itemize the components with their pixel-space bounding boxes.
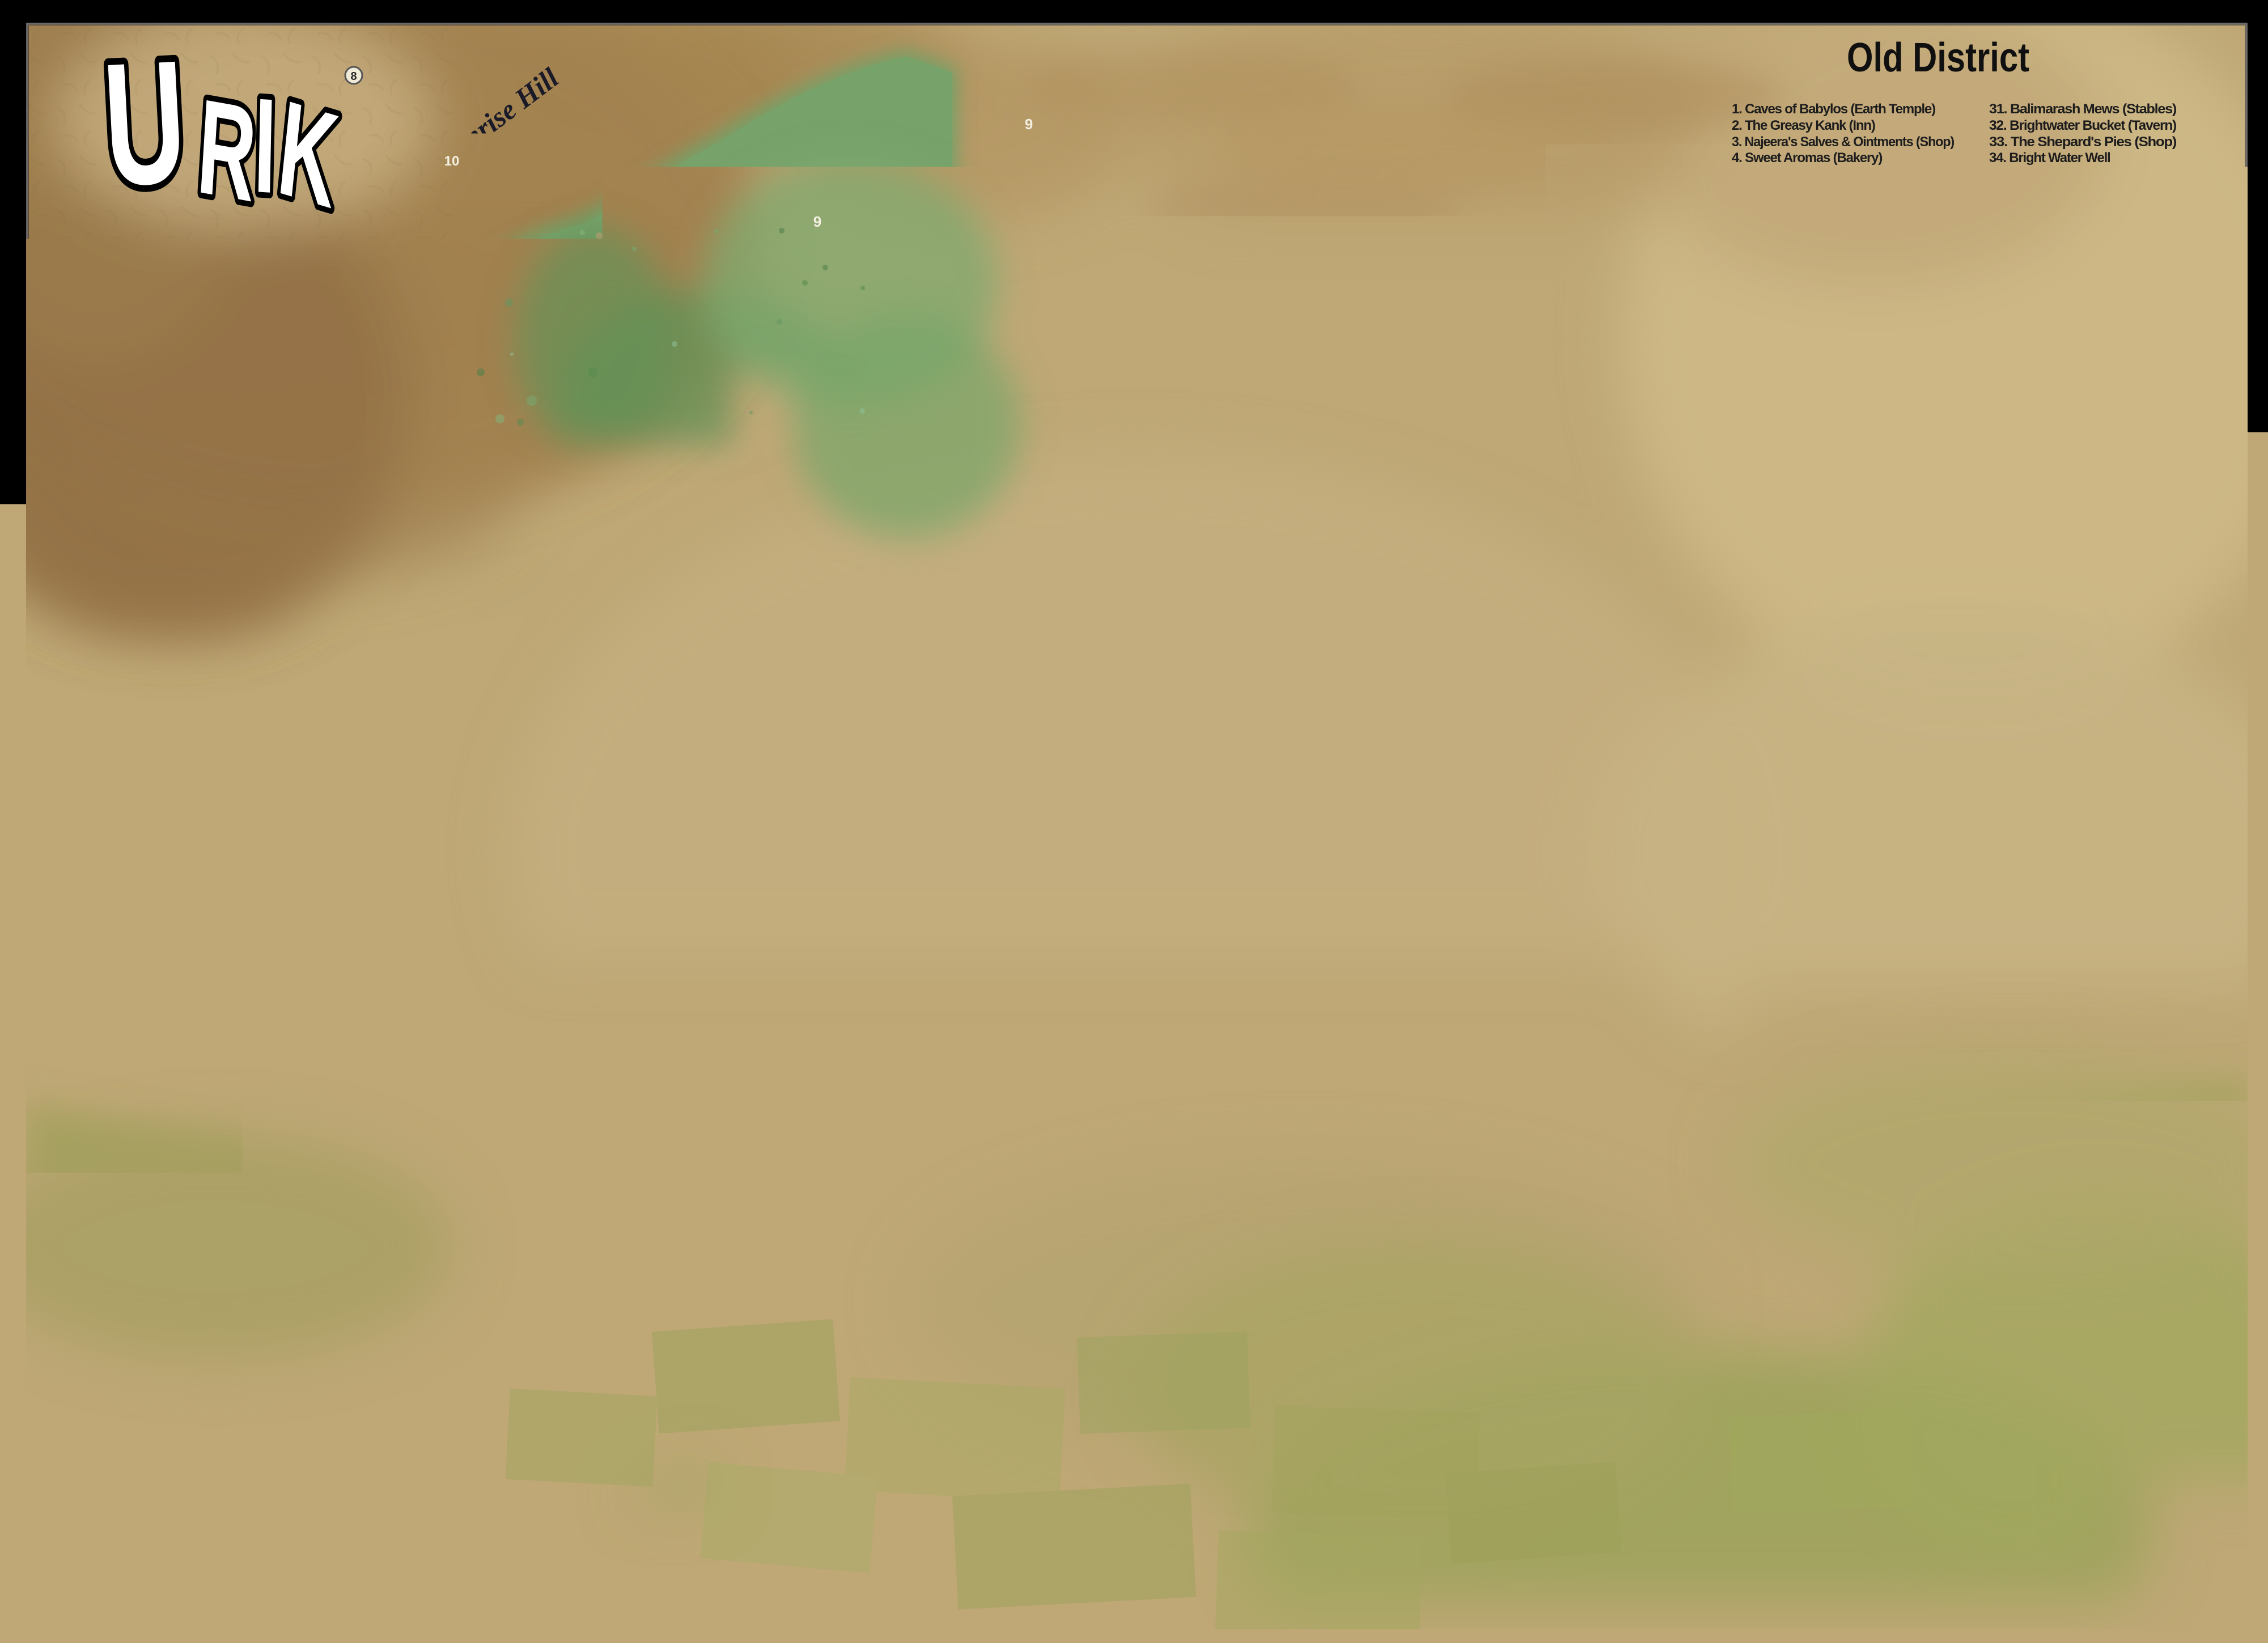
svg-text:13. Noktik's Obsidian Emporium: 13. Noktik's Obsidian Emporium (Shop) xyxy=(1873,859,2055,874)
svg-text:25. Shalia's Crystal Finery (: 25. Shalia's Crystal Finery (Shop) xyxy=(2061,859,2248,874)
svg-text:7: 7 xyxy=(409,429,416,444)
svg-text:2. Open Arms Inn (Inn): 2. Open Arms Inn (Inn) xyxy=(1343,1302,1481,1318)
svg-text:SIXTH STREET: SIXTH STREET xyxy=(640,969,648,1038)
svg-text:31. Arah's Exquisite Ceramics: 31. Arah's Exquisite Ceramics (Shop) xyxy=(2061,971,2248,986)
svg-text:2: 2 xyxy=(1212,837,1218,849)
svg-text:26: 26 xyxy=(1180,961,1192,973)
svg-text:Observatory: Observatory xyxy=(2051,1568,2195,1600)
svg-text:23: 23 xyxy=(1074,328,1086,339)
svg-text:54. Yelloweyes (Tavern): 54. Yelloweyes (Tavern) xyxy=(1989,477,2125,492)
svg-text:2: 2 xyxy=(554,557,560,570)
svg-text:3. Mother's (Tavern): 3. Mother's (Tavern) xyxy=(1343,1321,1464,1336)
svg-text:12: 12 xyxy=(1207,1120,1217,1130)
svg-text:6. Caravan Depot: 6. Caravan Depot xyxy=(234,818,344,835)
svg-text:60. Shining Star (Inn): 60. Shining Star (Inn) xyxy=(1989,575,2110,590)
svg-text:ROARING WAY: ROARING WAY xyxy=(505,856,573,866)
svg-text:50. Bread Market: 50. Bread Market xyxy=(1989,411,2088,427)
svg-text:22. Numar's Fine Spirits (Tave: 22. Numar's Fine Spirits (Tavern) xyxy=(865,1411,1082,1427)
svg-text:8. The Templar Orphanage: 8. The Templar Orphanage xyxy=(118,1093,287,1110)
svg-text:1: 1 xyxy=(533,911,540,923)
svg-text:8: 8 xyxy=(1411,1017,1417,1028)
svg-text:23. Yorgar's Poultry Shop (Sho: 23. Yorgar's Poultry Shop (Shop) xyxy=(1732,461,1922,476)
svg-text:2. The Temple of the Lion Go: 2. The Temple of the Lion God (Civic Bur… xyxy=(54,303,372,320)
svg-text:34: 34 xyxy=(1315,358,1326,370)
svg-text:26: 26 xyxy=(780,877,792,889)
svg-text:26: 26 xyxy=(1335,378,1347,390)
svg-text:6: 6 xyxy=(1370,1165,1376,1176)
svg-text:8. The Lion's Crown (Inn): 8. The Lion's Crown (Inn) xyxy=(671,1392,823,1408)
svg-text:18. The Flesh Markets: 18. The Flesh Markets xyxy=(2046,1171,2173,1187)
svg-text:9: 9 xyxy=(1021,506,1027,518)
svg-text:SECOND STREET: SECOND STREET xyxy=(454,864,462,944)
svg-text:50': 50' xyxy=(86,1505,112,1526)
svg-text:8: 8 xyxy=(350,70,357,83)
svg-text:3. Whispers (Tavern): 3. Whispers (Tavern) xyxy=(118,999,248,1016)
svg-text:Templar District: Templar District xyxy=(84,908,348,949)
svg-text:4. The Banshee's Wail (Tavern): 4. The Banshee's Wail (Tavern) xyxy=(671,1319,864,1335)
svg-text:5: 5 xyxy=(804,1022,810,1034)
svg-text:21.The Rascally Rasclinn (Inn): 21.The Rascally Rasclinn (Inn) xyxy=(1732,428,1907,443)
svg-text:25: 25 xyxy=(1536,708,1549,720)
svg-text:17. House Lubar Villa: 17. House Lubar Villa xyxy=(865,1319,995,1335)
svg-text:2: 2 xyxy=(1237,822,1244,834)
svg-text:7: 7 xyxy=(536,1145,541,1156)
svg-text:49: 49 xyxy=(1055,385,1067,397)
svg-text:24: 24 xyxy=(1275,559,1288,571)
svg-text:LION'S WAY: LION'S WAY xyxy=(1014,806,1023,866)
svg-text:32. Font of Hamanu the Water-: 32. Font of Hamanu the Water-Bringer xyxy=(2061,990,2248,1005)
svg-text:IMPERIAL STREET: IMPERIAL STREET xyxy=(816,1059,825,1151)
svg-text:20: 20 xyxy=(1475,269,1487,281)
svg-text:18. Kik'ki'rik's Chitinwear (S: 18. Kik'ki'rik's Chitinwear (Shop) xyxy=(1732,379,1918,394)
svg-text:5. Cool Breeze Inn (Inn): 5. Cool Breeze Inn (Inn) xyxy=(1672,933,1807,949)
svg-text:3. The Yellow Sloth (Inn): 3. The Yellow Sloth (Inn) xyxy=(1672,727,1811,742)
svg-text:Foreign Quarter: Foreign Quarter xyxy=(1315,1232,1580,1273)
svg-text:6. Scents of the Forest (Shop): 6. Scents of the Forest (Shop) xyxy=(1732,183,1904,198)
svg-text:8: 8 xyxy=(434,985,439,996)
svg-text:58. The Marriage Market: 58. The Marriage Market xyxy=(1989,542,2129,558)
svg-text:SLAVE BOULEVARD: SLAVE BOULEVARD xyxy=(418,600,506,610)
svg-text:37: 37 xyxy=(1246,368,1258,380)
svg-text:48. District Precinct: 48. District Precinct xyxy=(1989,379,2102,394)
svg-text:56. Oraniah's Glassworks (Sho: 56. Oraniah's Glassworks (Shop) xyxy=(1989,510,2176,525)
svg-text:9. King's Gardens: 9. King's Gardens xyxy=(54,439,167,456)
svg-text:44. Zakkur's Tailoring (Shop): 44. Zakkur's Tailoring (Shop) xyxy=(1989,313,2176,329)
svg-text:6. Harganto's Strange Delights: 6. Harganto's Strange Delights xyxy=(1672,952,1859,967)
svg-text:42. Farmer's Market: 42. Farmer's Market xyxy=(1989,281,2104,296)
svg-text:13: 13 xyxy=(1055,1174,1066,1184)
svg-text:10. Nerridh's Outrider Hiring: 10. Nerridh's Outrider Hiring Services xyxy=(1870,746,2061,761)
svg-text:5: 5 xyxy=(1299,516,1305,528)
svg-text:U: U xyxy=(99,24,190,223)
svg-text:10. Ughrosh's Gladiator School: 10. Ughrosh's Gladiator School (School) xyxy=(1343,1453,1585,1468)
svg-text:55: 55 xyxy=(1182,284,1195,296)
svg-text:10: 10 xyxy=(1368,766,1380,778)
svg-text:4. Shadow Market: 4. Shadow Market xyxy=(234,779,348,796)
svg-text:1: 1 xyxy=(460,966,465,977)
svg-text:FOURTH STREET: FOURTH STREET xyxy=(537,1043,545,1122)
svg-text:24. Xerxes' Botanicals (Shop): 24. Xerxes' Botanicals (Shop) xyxy=(1732,477,1902,492)
svg-text:(Water Temple):: (Water Temple): xyxy=(2061,1008,2152,1023)
svg-text:1: 1 xyxy=(1240,862,1246,874)
svg-text:44: 44 xyxy=(1426,464,1438,476)
svg-text:49: 49 xyxy=(1005,472,1017,483)
svg-text:9. House Tslaxa: 9. House Tslaxa xyxy=(1841,1138,1934,1153)
svg-text:13. Arena Compound: 13. Arena Compound xyxy=(1841,1205,1965,1220)
svg-text:32. Brightwater Bucket (Taver: 32. Brightwater Bucket (Tavern) xyxy=(1989,118,2176,133)
svg-text:47: 47 xyxy=(1313,543,1325,555)
svg-text:7: 7 xyxy=(1206,1164,1211,1174)
svg-text:1: 1 xyxy=(1378,1132,1384,1144)
svg-text:32: 32 xyxy=(1206,452,1218,464)
svg-text:14. Gates of Woe: 14. Gates of Woe xyxy=(1686,1340,1790,1356)
svg-text:9: 9 xyxy=(514,1137,519,1149)
svg-text:27. Creature Comforts (Stables: 27. Creature Comforts (Stables) xyxy=(1732,526,1915,541)
svg-text:7. Ghulda's Grotto (Earth Temp: 7. Ghulda's Grotto (Earth Temple) xyxy=(1343,1396,1546,1412)
svg-text:11. House Wavir: 11. House Wavir xyxy=(1841,1171,1935,1187)
svg-text:40. The Prancing Peacock (Inn: 40. The Prancing Peacock (Inn) xyxy=(1989,248,2176,264)
svg-text:16. Shisha Lounge (Tavern): 16. Shisha Lounge (Tavern) xyxy=(1732,346,1891,362)
svg-text:1. Gates of Destiny: 1. Gates of Destiny xyxy=(1672,859,1782,874)
svg-text:10. Potter's Court: 10. Potter's Court xyxy=(1672,1026,1773,1042)
svg-text:42: 42 xyxy=(1313,465,1325,478)
svg-text:18: 18 xyxy=(1500,539,1512,551)
svg-text:5. House Klethira: 5. House Klethira xyxy=(1680,1188,1781,1204)
svg-text:22: 22 xyxy=(1188,815,1199,827)
svg-text:Artisan Quarter: Artisan Quarter xyxy=(1798,800,2060,844)
svg-text:13. Doriman's Hardy Spindles (: 13. Doriman's Hardy Spindles (Shop) xyxy=(1686,1321,1921,1336)
svg-text:21. Enkidu's Venture Shop (Sho: 21. Enkidu's Venture Shop (Shop) xyxy=(1873,1008,2055,1023)
svg-text:2: 2 xyxy=(936,440,944,457)
svg-text:5: 5 xyxy=(1269,451,1275,462)
svg-text:35: 35 xyxy=(1045,436,1058,448)
svg-text:2: 2 xyxy=(842,1093,849,1105)
svg-text:17. The Shiv (Tavern): 17. The Shiv (Tavern) xyxy=(1686,1396,1814,1412)
svg-text:CUSTOMS ROW: CUSTOMS ROW xyxy=(1303,956,1376,966)
svg-text:12. Voric's Tonics & Things (S: 12. Voric's Tonics & Things (Shop) xyxy=(1686,1302,1895,1318)
svg-text:22: 22 xyxy=(1392,910,1404,922)
svg-text:1. Urikets: 1. Urikets xyxy=(671,1264,728,1280)
svg-text:38: 38 xyxy=(1128,408,1140,420)
svg-text:2. House Stel: 2. House Stel xyxy=(1680,1138,1757,1153)
svg-text:9: 9 xyxy=(1210,1130,1215,1140)
svg-text:59: 59 xyxy=(1449,378,1461,390)
svg-text:1. The Thirsty Tigone (Tavern): 1. The Thirsty Tigone (Tavern) xyxy=(1672,690,1858,706)
svg-text:47: 47 xyxy=(1423,263,1435,275)
svg-text:19. Dragon's Square: 19. Dragon's Square xyxy=(1686,1434,1811,1450)
svg-text:53. Beyond the Forest (Shop): 53. Beyond the Forest (Shop) xyxy=(1989,461,2176,476)
svg-text:Trader's Row: Trader's Row xyxy=(1821,646,2040,691)
svg-text:20. The Friendly Mekillot (Sta: 20. The Friendly Mekillot (Stables) xyxy=(1873,990,2055,1005)
svg-text:9: 9 xyxy=(813,213,821,230)
svg-text:15. Deep Cups (Tavern): 15. Deep Cups (Tavern) xyxy=(1686,1358,1828,1374)
svg-text:19: 19 xyxy=(1010,537,1021,549)
svg-text:6. Royal Guard Barracks (Hal: 6. Royal Guard Barracks (Half-Giant Barr… xyxy=(54,381,372,398)
svg-text:8: 8 xyxy=(1366,404,1372,416)
svg-text:25. The Weeping Widow (Tavern): 25. The Weeping Widow (Tavern) xyxy=(1732,493,1922,508)
svg-text:31. Balimarash Mews (Stables): 31. Balimarash Mews (Stables) xyxy=(1989,101,2176,117)
svg-text:LION'S WAY: LION'S WAY xyxy=(1057,644,1116,655)
svg-text:6. Bloody Knuckles (Tavern): 6. Bloody Knuckles (Tavern) xyxy=(1680,1205,1834,1220)
svg-text:4: 4 xyxy=(762,461,771,478)
svg-text:9. The Three-Armed B'rogh (Tav: 9. The Three-Armed B'rogh (Tavern) xyxy=(1343,1434,1562,1450)
svg-text:31: 31 xyxy=(1511,901,1524,912)
svg-text:18. House Ugared Villa: 18. House Ugared Villa xyxy=(865,1338,1004,1353)
svg-text:6. Xenon's Ink & Quill (Shop): 6. Xenon's Ink & Quill (Shop) xyxy=(671,1356,864,1372)
svg-text:250': 250' xyxy=(170,1505,207,1526)
svg-text:21: 21 xyxy=(1412,388,1425,400)
svg-text:4. House Krosi: 4. House Krosi xyxy=(1680,1171,1766,1187)
svg-text:38. Giant's Foot (Tavern): 38. Giant's Foot (Tavern) xyxy=(1989,216,2130,231)
svg-text:Old District: Old District xyxy=(1847,35,2029,80)
svg-text:10: 10 xyxy=(590,779,601,790)
svg-text:8. Royal Observatory: 8. Royal Observatory xyxy=(54,420,189,437)
svg-text:16. The Weaver's Market: 16. The Weaver's Market xyxy=(1873,915,2015,930)
svg-text:4. The Temple of War (War Bu: 4. The Temple of War (War Bureau) xyxy=(54,342,274,359)
svg-text:24. Muktal's Herbs and Poultic: 24. Muktal's Herbs and Poultices (Shop) xyxy=(1873,1064,2055,1079)
svg-text:6: 6 xyxy=(628,1016,634,1028)
svg-text:9. Vaunted Expeditions (Shop): 9. Vaunted Expeditions (Shop) xyxy=(1732,232,1908,247)
svg-text:24: 24 xyxy=(702,823,714,835)
svg-text:16. Quaa's Kingly Goods (Shop): 16. Quaa's Kingly Goods (Shop) xyxy=(865,1301,1060,1317)
svg-text:PROCESSION BOULEVARD: PROCESSION BOULEVARD xyxy=(1307,750,1316,882)
svg-text:10: 10 xyxy=(1386,1096,1397,1107)
svg-text:15: 15 xyxy=(1523,922,1535,933)
svg-text:29: 29 xyxy=(1533,268,1545,280)
svg-text:45: 45 xyxy=(1171,515,1183,527)
svg-text:7: 7 xyxy=(1014,524,1020,536)
svg-text:9: 9 xyxy=(1025,116,1033,133)
svg-text:100': 100' xyxy=(108,1587,145,1608)
svg-text:FIFTH STREET: FIFTH STREET xyxy=(579,945,587,1013)
svg-text:15: 15 xyxy=(1346,377,1359,389)
svg-text:1. The Royal Palace: 1. The Royal Palace xyxy=(54,283,179,300)
svg-text:25.House Korri Villa: 25.House Korri Villa xyxy=(865,1466,986,1481)
svg-text:20. Badur's Hats & Helms (Shop: 20. Badur's Hats & Helms (Shop) xyxy=(1732,411,1922,427)
svg-text:57. Manystoops Housing: 57. Manystoops Housing xyxy=(1989,526,2135,541)
svg-text:INIX STREET: INIX STREET xyxy=(1622,710,1631,774)
svg-text:59. The Winery Market: 59. The Winery Market xyxy=(1989,558,2119,574)
svg-text:45. The Screaming Kestrel (Ta: 45. The Screaming Kestrel (Tavern) xyxy=(1989,330,2176,345)
svg-text:25: 25 xyxy=(719,694,731,706)
svg-text:25: 25 xyxy=(1025,312,1037,324)
svg-text:33. The Shepard's Pies (Shop): 33. The Shepard's Pies (Shop) xyxy=(1989,134,2176,150)
svg-text:1000': 1000' xyxy=(497,1499,547,1522)
svg-text:9. One Man's Treasure (Shop: 9. One Man's Treasure (Shop) xyxy=(1870,727,2061,742)
svg-text:Destiny's Kingdom: Destiny's Kingdom xyxy=(53,249,360,286)
svg-text:8: 8 xyxy=(614,875,620,886)
svg-text:6: 6 xyxy=(1371,871,1377,883)
svg-text:6: 6 xyxy=(670,802,676,814)
svg-text:9. House Numaral Villa: 9. House Numaral Villa xyxy=(671,1411,809,1427)
svg-text:5. Guralh's Eatery (Shop): 5. Guralh's Eatery (Shop) xyxy=(1732,167,1877,182)
svg-text:11. Fairy Tails (Tavern): 11. Fairy Tails (Tavern) xyxy=(671,1447,806,1463)
svg-text:14. House Munarim Villa: 14. House Munarim Villa xyxy=(865,1264,1014,1280)
svg-text:20. The Squeaky Wagon (Inn): 20. The Squeaky Wagon (Inn) xyxy=(2046,1205,2216,1220)
svg-text:7. The King's Cup (Shop): 7. The King's Cup (Shop) xyxy=(1672,971,1817,986)
svg-text:5: 5 xyxy=(477,983,483,995)
svg-text:17: 17 xyxy=(778,1043,790,1055)
svg-text:MERCHANT'S WAY: MERCHANT'S WAY xyxy=(1392,1028,1478,1037)
svg-text:1. Palace of the High Templars: 1. Palace of the High Templars xyxy=(118,962,314,979)
svg-text:10. House of Many Fists (Schoo: 10. House of Many Fists (School) xyxy=(1732,248,1923,264)
svg-text:JOINER'S ROW: JOINER'S ROW xyxy=(1285,821,1351,831)
svg-text:2. Asu's Vigilant Guides: 2. Asu's Vigilant Guides xyxy=(1672,709,1809,724)
svg-text:43. Greenleaf's Grotto (Shop): 43. Greenleaf's Grotto (Shop) xyxy=(1989,298,2176,313)
svg-text:2: 2 xyxy=(999,530,1005,542)
svg-text:15. Xendar's Jewels & Baubles: 15. Xendar's Jewels & Baubles (Shop) xyxy=(865,1282,1082,1298)
svg-text:34. Bright Water Well: 34. Bright Water Well xyxy=(1989,150,2110,165)
svg-text:9: 9 xyxy=(455,782,460,793)
svg-text:19. The Wanderer's Friend (Sh: 19. The Wanderer's Friend (Shop) xyxy=(2046,1188,2241,1204)
svg-text:44: 44 xyxy=(1428,581,1441,593)
svg-text:SHADOW LANE: SHADOW LANE xyxy=(497,1186,564,1196)
svg-text:5: 5 xyxy=(1177,1165,1182,1174)
svg-text:16. Oroth's Cradle (Orphanage): 16. Oroth's Cradle (Orphanage) xyxy=(1686,1377,1876,1393)
svg-text:2: 2 xyxy=(1368,1063,1375,1075)
svg-text:Slave Compound: Slave Compound xyxy=(63,677,334,718)
svg-text:27: 27 xyxy=(1197,563,1209,575)
svg-text:25': 25' xyxy=(72,1587,98,1608)
svg-text:52. Fountain of the Ancients: 52. Fountain of the Ancients xyxy=(1989,444,2177,460)
svg-text:46. Nurtom the Wheelwright (: 46. Nurtom the Wheelwright (Shop) xyxy=(1989,346,2176,362)
svg-text:14. Guthay's Blessings (Air T: 14. Guthay's Blessings (Air Temple) xyxy=(2061,709,2248,724)
svg-text:10: 10 xyxy=(1099,1045,1109,1054)
svg-text:17. The Wilted Tusks (Inn): 17. The Wilted Tusks (Inn) xyxy=(2046,1155,2195,1170)
svg-text:12. House Resherek: 12. House Resherek xyxy=(1841,1188,1959,1204)
svg-text:15. Delights from Beyond (Shop: 15. Delights from Beyond (Shop) xyxy=(1732,330,1922,345)
svg-text:20: 20 xyxy=(736,1152,748,1164)
svg-text:4: 4 xyxy=(1189,1031,1194,1041)
svg-text:2: 2 xyxy=(1048,366,1054,378)
svg-text:24. House Cordanna Villa: 24. House Cordanna Villa xyxy=(865,1447,1020,1463)
svg-text:8: 8 xyxy=(1095,1063,1100,1072)
svg-text:HIGH STREEET: HIGH STREEET xyxy=(502,958,572,967)
svg-text:15. Loktal's Apothecary (Shop): 15. Loktal's Apothecary (Shop) xyxy=(1873,897,2055,912)
svg-text:6. Shani's Hirelings: 6. Shani's Hirelings xyxy=(1343,1377,1460,1393)
svg-text:4: 4 xyxy=(1049,460,1055,472)
svg-text:24: 24 xyxy=(1236,962,1249,974)
svg-text:1. Caves of Babylos (Earth Tem: 1. Caves of Babylos (Earth Temple) xyxy=(1732,101,1935,117)
svg-text:4. Giant's Hearth (Inn for Hal: 4. Giant's Hearth (Inn for Half-Giants) xyxy=(1672,746,1858,761)
svg-text:17: 17 xyxy=(1188,776,1199,788)
svg-text:4: 4 xyxy=(1087,358,1093,370)
svg-text:2000': 2000' xyxy=(942,1586,992,1610)
svg-text:12: 12 xyxy=(1389,1080,1401,1091)
svg-text:FIRST STREET: FIRST STREET xyxy=(415,737,423,810)
svg-text:ZHAKAL WAY: ZHAKAL WAY xyxy=(1548,701,1556,766)
svg-text:19. District Precinct: 19. District Precinct xyxy=(865,1356,984,1372)
svg-text:22: 22 xyxy=(1562,804,1574,816)
svg-text:36. Darius' Fine Leathers (Sh: 36. Darius' Fine Leathers (Shop) xyxy=(1989,183,2176,198)
svg-text:BRONZE STREET: BRONZE STREET xyxy=(1383,700,1391,785)
svg-text:15: 15 xyxy=(1571,780,1584,792)
svg-text:52: 52 xyxy=(1476,542,1487,554)
svg-text:30: 30 xyxy=(1543,360,1555,372)
svg-text:9: 9 xyxy=(563,1089,569,1101)
svg-text:5. The Staked Johzhal (Tavern): 5. The Staked Johzhal (Tavern) xyxy=(118,1037,314,1054)
svg-text:10: 10 xyxy=(444,154,460,169)
svg-text:44: 44 xyxy=(1307,454,1320,466)
svg-text:23: 23 xyxy=(1352,958,1364,970)
svg-text:11. The Sated Fael (Tavern): 11. The Sated Fael (Tavern) xyxy=(1870,764,2026,779)
svg-text:13. Ktandeo's Garden (Shop): 13. Ktandeo's Garden (Shop) xyxy=(1732,298,1900,313)
svg-text:12. The Flaming Kirre (Inn): 12. The Flaming Kirre (Inn) xyxy=(671,1466,832,1481)
svg-text:1. The Elven Market: 1. The Elven Market xyxy=(1343,1283,1464,1299)
svg-text:31: 31 xyxy=(1514,567,1526,579)
svg-text:4. Hale & Hearty (Inn): 4. Hale & Hearty (Inn) xyxy=(118,1018,252,1035)
svg-text:16. Sher-Ammu (Earth Temple): 16. Sher-Ammu (Earth Temple) xyxy=(2046,1138,2225,1153)
svg-text:3: 3 xyxy=(829,469,837,486)
svg-text:28: 28 xyxy=(1024,271,1036,283)
svg-text:3. Obsidian Gate: 3. Obsidian Gate xyxy=(1680,1155,1777,1170)
svg-text:1. Slave Barracks: 1. Slave Barracks xyxy=(234,721,345,738)
svg-text:53: 53 xyxy=(1334,513,1346,525)
svg-text:6: 6 xyxy=(1363,898,1369,910)
svg-text:SILVER STREET: SILVER STREET xyxy=(1239,697,1247,776)
svg-text:31: 31 xyxy=(1610,913,1622,925)
svg-text:13: 13 xyxy=(1442,859,1454,871)
svg-text:3. Najeera's Salves & Ointment: 3. Najeera's Salves & Ointments (Shop) xyxy=(1732,134,1954,150)
svg-text:GATE: GATE xyxy=(1604,626,1630,636)
svg-text:18. Beggar's Palace: 18. Beggar's Palace xyxy=(1686,1415,1807,1430)
svg-text:18. Halgost's Halls (Inn): 18. Halgost's Halls (Inn) xyxy=(1873,952,2009,967)
svg-text:2. Lion's Square: 2. Lion's Square xyxy=(1672,878,1766,893)
svg-text:3. House Plutarch Villa: 3. House Plutarch Villa xyxy=(671,1301,809,1317)
svg-text:24: 24 xyxy=(1470,751,1483,763)
svg-text:26. Laria's Brickworks (shop): 26. Laria's Brickworks (shop) xyxy=(1732,510,1901,525)
svg-text:17. Royal Customhouse: 17. Royal Customhouse xyxy=(1873,933,2013,949)
svg-text:16. Fruits of My Loins (Shop): 16. Fruits of My Loins (Shop) xyxy=(2061,746,2248,761)
svg-text:6. The Lonely Lion (Tavern): 6. The Lonely Lion (Tavern) xyxy=(1672,783,1829,798)
svg-text:4. Aleerah's Starry Dreams (Sh: 4. Aleerah's Starry Dreams (Shop) xyxy=(1343,1340,1550,1356)
svg-text:18: 18 xyxy=(1537,1046,1550,1058)
svg-text:13. House Ishmenu Villa: 13. House Ishmenu Villa xyxy=(671,1484,818,1500)
svg-text:1. House M'Ke: 1. House M'Ke xyxy=(1680,1122,1764,1137)
svg-text:17. Zarrah's Fine Meats (Shop: 17. Zarrah's Fine Meats (Shop) xyxy=(2061,764,2248,779)
svg-text:14. The Desert's Respite (Tave: 14. The Desert's Respite (Tavern) xyxy=(1873,878,2055,893)
svg-text:2: 2 xyxy=(1040,536,1046,550)
svg-text:7. House Tromblador: 7. House Tromblador xyxy=(1680,1221,1803,1237)
svg-text:5: 5 xyxy=(1220,430,1226,441)
svg-text:19. Lost & Found (Shop): 19. Lost & Found (Shop) xyxy=(1732,395,1873,410)
svg-text:12. Split Rock Orphanage: 12. Split Rock Orphanage xyxy=(1732,281,1881,296)
svg-text:39. Tensin's Wagons (Shop): 39. Tensin's Wagons (Shop) xyxy=(1989,232,2151,247)
svg-text:Lion's Way: Lion's Way xyxy=(1328,643,1382,654)
svg-text:7. Little Jungle (Halfling B: 7. Little Jungle (Halfling Barracks) xyxy=(54,400,268,417)
svg-text:5. Irokos' Armaments (School/S: 5. Irokos' Armaments (School/Shop) xyxy=(1343,1358,1564,1374)
svg-text:9: 9 xyxy=(1239,336,1245,348)
svg-text:35. The Weary Lion (Inn): 35. The Weary Lion (Inn) xyxy=(1989,167,2130,182)
svg-text:20. House Mendu Villa: 20. House Mendu Villa xyxy=(865,1374,1002,1390)
svg-text:4. Sweet Aromas (Bakery): 4. Sweet Aromas (Bakery) xyxy=(1732,150,1882,165)
svg-text:6: 6 xyxy=(1503,762,1510,774)
svg-text:29. The Flayed Braxat (Shop): 29. The Flayed Braxat (Shop) xyxy=(2061,933,2248,949)
svg-text:17: 17 xyxy=(1348,1081,1359,1093)
svg-text:2. High Gate: 2. High Gate xyxy=(671,1282,746,1298)
svg-text:8. House Vordon: 8. House Vordon xyxy=(1841,1122,1938,1137)
svg-text:1: 1 xyxy=(688,810,694,822)
svg-text:9: 9 xyxy=(434,809,439,821)
svg-text:20. Dustdevil Inn (Inn): 20. Dustdevil Inn (Inn) xyxy=(1686,1453,1818,1468)
svg-text:1: 1 xyxy=(932,813,938,825)
svg-text:25: 25 xyxy=(1502,339,1515,351)
svg-text:22. Temple of the Sun (Fire Te: 22. Temple of the Sun (Fire Temple) xyxy=(1873,1026,2055,1042)
svg-text:51. Artan's Mounts (Shop): 51. Artan's Mounts (Shop) xyxy=(1989,428,2140,443)
svg-text:28. The Jilted Sister (Tavern): 28. The Jilted Sister (Tavern) xyxy=(1732,542,1896,558)
svg-text:41. Birds of a Feather (Shop): 41. Birds of a Feather (Shop) xyxy=(1989,265,2176,280)
svg-text:3. Lion King's Fountain: 3. Lion King's Fountain xyxy=(1672,897,1806,912)
